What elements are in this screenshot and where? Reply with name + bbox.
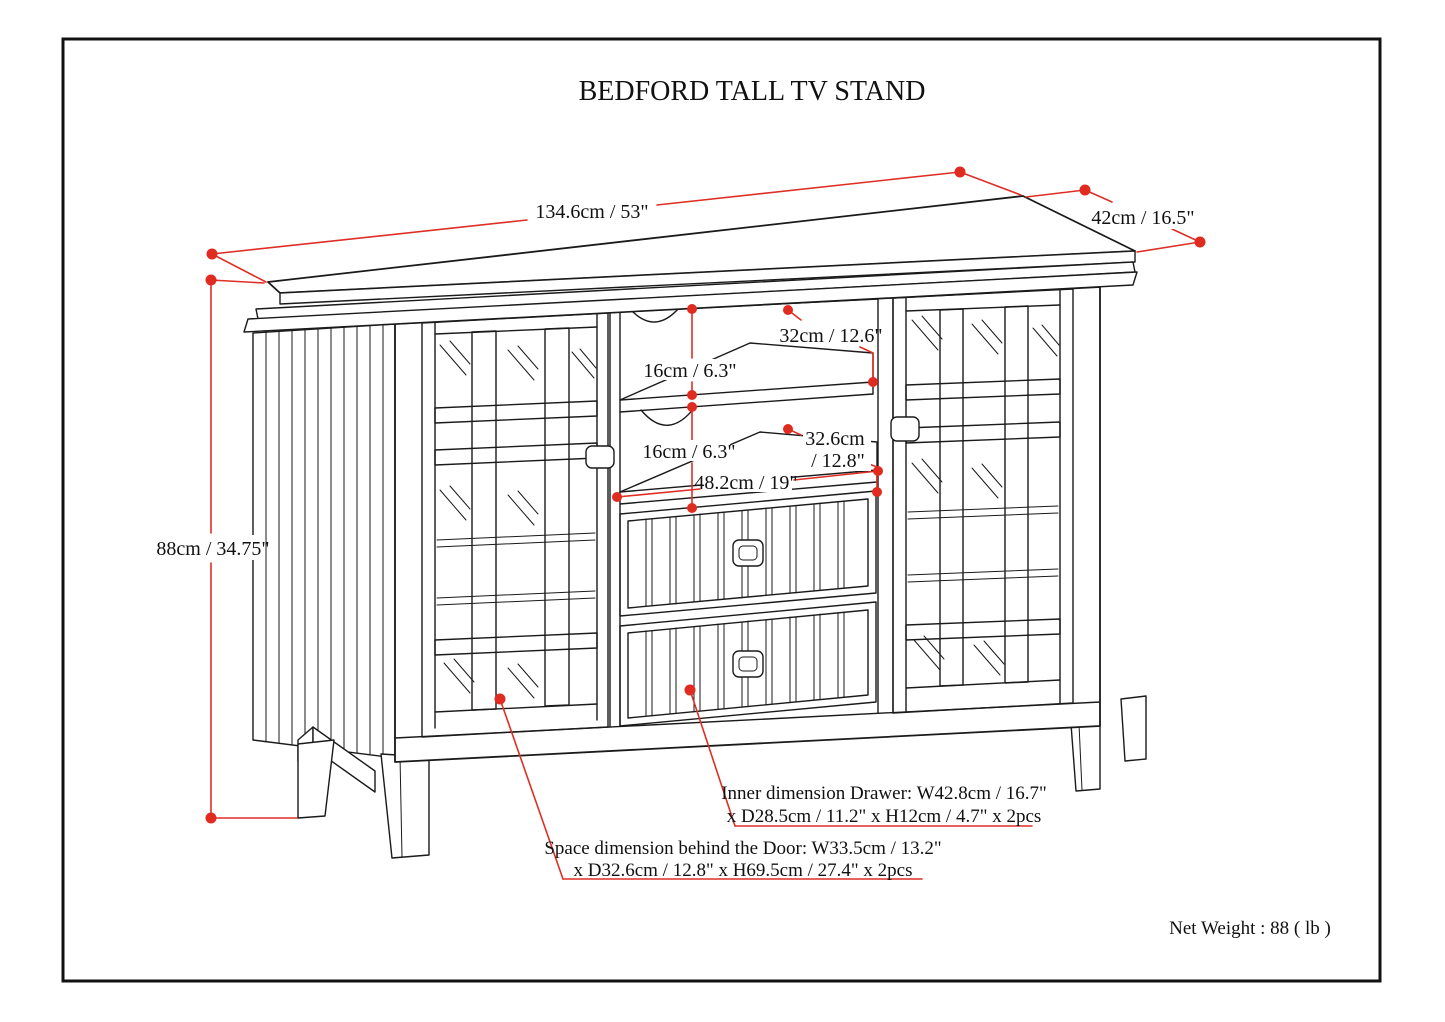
tv-stand-drawing xyxy=(244,196,1146,858)
back-left-leg xyxy=(298,740,334,818)
callout-drawer-line1: Inner dimension Drawer: W42.8cm / 16.7" xyxy=(721,783,1047,804)
drawer-1-knob xyxy=(733,540,763,566)
drawer-2-knob xyxy=(733,651,763,677)
dim-shelf1-depth-label: 32cm / 12.6" xyxy=(779,325,882,347)
left-side-panel xyxy=(253,324,395,758)
dim-width-label: 134.6cm / 53" xyxy=(535,201,648,223)
spec-sheet-page: BEDFORD TALL TV STAND 134.6cm / 53" 42cm… xyxy=(0,0,1445,1022)
callout-door-line2: x D32.6cm / 12.8" x H69.5cm / 27.4" x 2p… xyxy=(573,860,912,881)
net-weight-label: Net Weight : 88 ( lb ) xyxy=(1169,918,1331,939)
dim-center-width-label: 48.2cm / 19" xyxy=(694,472,797,494)
front-left-leg xyxy=(381,754,429,858)
dim-shelf2-depth-label-line2: / 12.8" xyxy=(811,450,865,472)
back-right-leg xyxy=(1121,696,1146,761)
page-title: BEDFORD TALL TV STAND xyxy=(579,76,926,107)
dim-shelf2-height-label: 16cm / 6.3" xyxy=(642,441,735,463)
left-door-knob xyxy=(586,446,614,468)
dim-height-label: 88cm / 34.75" xyxy=(156,538,269,560)
dim-shelf2-depth-label-line1: 32.6cm xyxy=(805,428,865,450)
callout-door-line1: Space dimension behind the Door: W33.5cm… xyxy=(544,838,941,859)
callout-drawer-line2: x D28.5cm / 11.2" x H12cm / 4.7" x 2pcs xyxy=(727,806,1042,827)
right-door-knob xyxy=(891,417,919,441)
front-right-leg xyxy=(1071,722,1100,791)
tv-stand-dimension-diagram: BEDFORD TALL TV STAND 134.6cm / 53" 42cm… xyxy=(0,0,1445,1022)
dim-depth-label: 42cm / 16.5" xyxy=(1091,207,1194,229)
dim-shelf1-height-label: 16cm / 6.3" xyxy=(643,360,736,382)
